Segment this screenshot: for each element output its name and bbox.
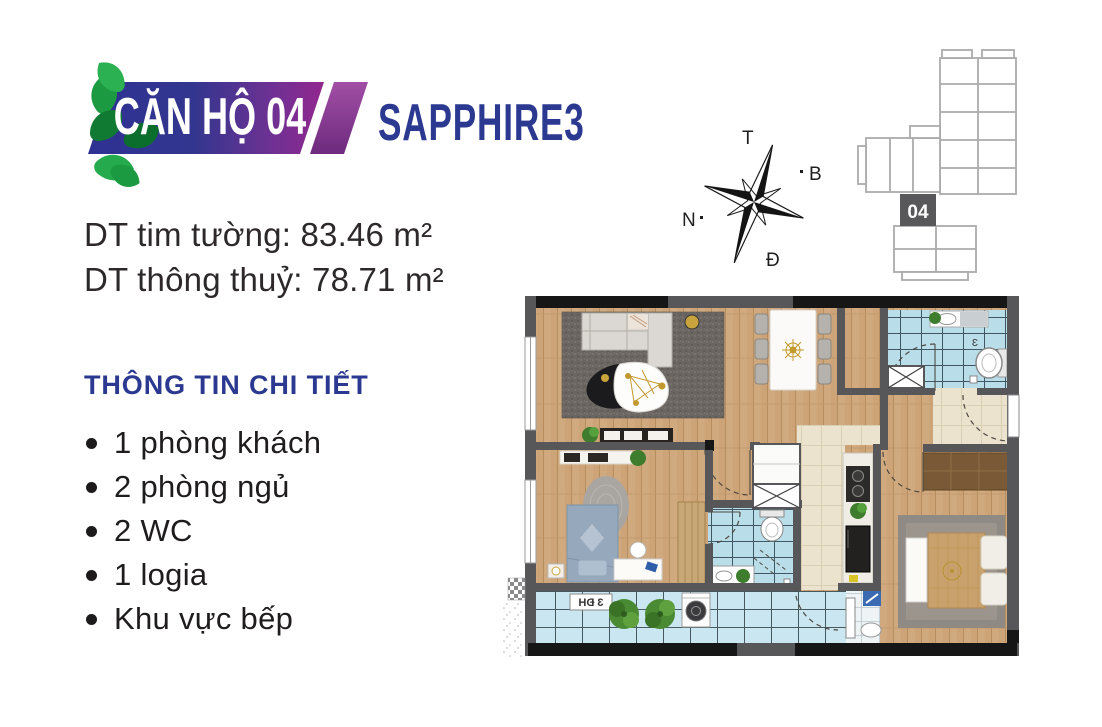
- compass-label-b: B: [809, 164, 822, 185]
- entry-floor: [933, 388, 1008, 444]
- bullet-icon: [86, 526, 97, 537]
- bed-1: [567, 505, 618, 582]
- chandelier-icon: [782, 339, 804, 361]
- area-info: DT tim tường: 83.46 m² DT thông thuỷ: 78…: [84, 212, 444, 302]
- plant-icon: [929, 312, 941, 324]
- toilet-icon: [976, 348, 1007, 378]
- list-item: 2 phòng ngủ: [86, 465, 321, 509]
- floorplan: Ɛ: [502, 286, 1047, 671]
- door-leaf: [846, 598, 855, 638]
- compass-label-t: T: [742, 128, 754, 149]
- plant-icon: [609, 599, 639, 629]
- compass-label-n: N: [682, 210, 696, 231]
- plant-icon: [630, 450, 646, 466]
- ground-texture: [502, 602, 525, 658]
- plant-icon: [645, 599, 675, 629]
- area-net: DT thông thuỷ: 78.71 m²: [84, 257, 444, 302]
- ac-ledge: [508, 578, 525, 600]
- laundry-sink: [861, 623, 881, 637]
- bullet-icon: [86, 614, 97, 625]
- dining-area: [755, 310, 831, 390]
- fridge-icon: [846, 526, 870, 572]
- bullet-icon: [86, 570, 97, 581]
- plant-icon: [736, 569, 750, 583]
- decor-bowl: [601, 374, 609, 382]
- details-list: 1 phòng khách 2 phòng ngủ 2 WC 1 logia K…: [86, 421, 321, 641]
- bedside-console: [906, 538, 927, 602]
- list-item: Khu vực bếp: [86, 597, 321, 641]
- list-item: 1 phòng khách: [86, 421, 321, 465]
- hallway-floor: [797, 425, 882, 445]
- chair: [630, 542, 646, 558]
- unit-title: CĂN HỘ 04: [114, 86, 307, 145]
- kitchen-floor: [797, 444, 845, 590]
- compass-label-d: Đ: [766, 250, 780, 271]
- logia-sign-text: 3 ĐH: [578, 597, 603, 609]
- washing-machine-icon: [682, 593, 710, 627]
- kitchen: [843, 453, 873, 583]
- bullet-icon: [86, 482, 97, 493]
- floor-lamp: [685, 315, 699, 329]
- details-heading: THÔNG TIN CHI TIẾT: [84, 370, 369, 401]
- flyer-page: CĂN HỘ 04 SAPPHIRE3 DT tim tường: 83.46 …: [0, 0, 1102, 727]
- bullet-icon: [86, 438, 97, 449]
- list-item: 1 logia: [86, 553, 321, 597]
- list-item: 2 WC: [86, 509, 321, 553]
- building-keyplan: 04: [856, 46, 1094, 284]
- logo-banner: CĂN HỘ 04 SAPPHIRE3: [84, 76, 554, 172]
- entry-door-leaf: [1008, 395, 1019, 437]
- area-gross: DT tim tường: 83.46 m²: [84, 212, 444, 257]
- compass-rose-icon: T B N Đ: [678, 126, 828, 278]
- wc1-mark: Ɛ: [972, 338, 978, 349]
- project-title: SAPPHIRE3: [378, 94, 585, 151]
- unit-04-label: 04: [907, 202, 929, 223]
